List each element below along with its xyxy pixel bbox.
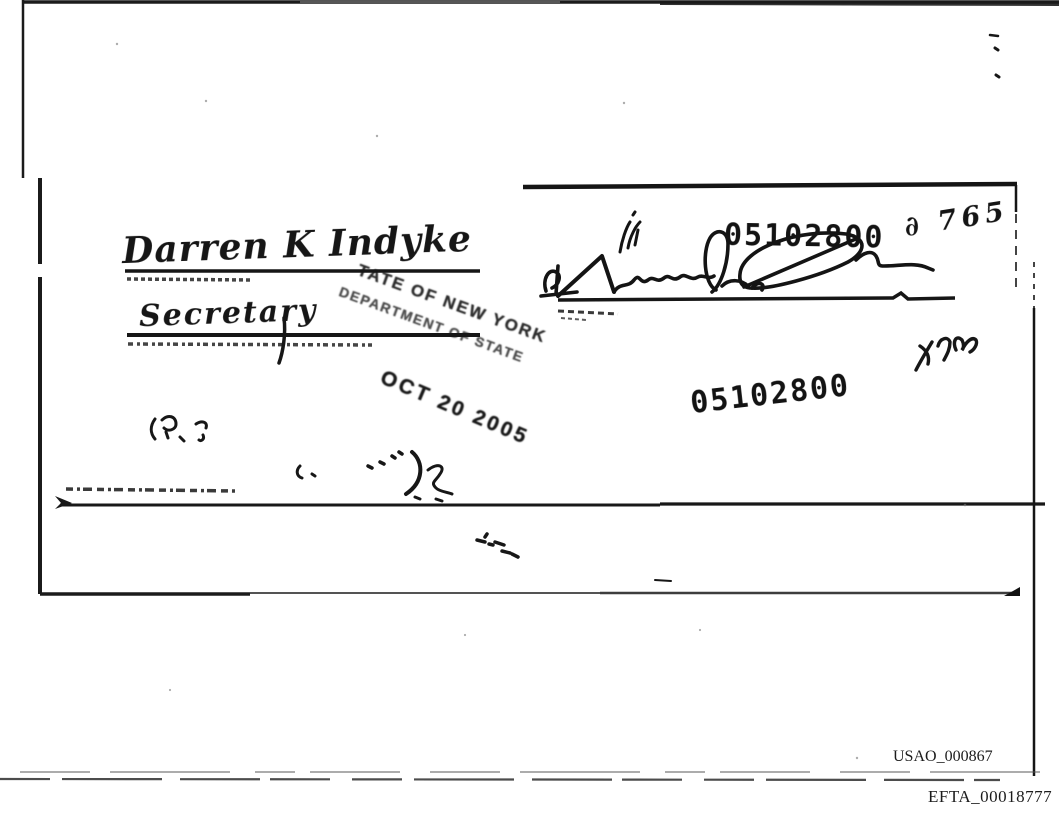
speck [964,504,967,507]
ink-mark-small-c [297,466,315,478]
ink-mark-star-cluster [477,534,518,557]
bottom-edge-dashes [0,772,1040,780]
signature1-microprint [127,279,253,280]
ink-mark-short-dash [655,580,671,581]
speck [376,135,378,137]
speck [205,100,207,102]
ink-mark-dots-row [368,452,402,468]
speck [169,689,171,691]
scrawl-cursive-arren [614,276,714,292]
ink-mark-triangle [1004,587,1020,596]
endorsement-microprint [558,311,618,314]
ink-mark-top-right-dot1 [995,48,998,50]
scrawl-tail [856,253,933,270]
ink-mark-cluster-left [151,417,206,441]
ink-mark-hebrew-scrawl [916,338,977,370]
ink-mark-top-right-dash [990,35,998,36]
speck [116,43,118,45]
speck [699,629,701,631]
scanned-document-page: Darren K Indyke Secretary TATE OF NEW YO… [0,0,1059,817]
scrawl-jm-mark [620,212,640,252]
endorsement-box-top-line [523,184,1017,187]
ink-marks [151,35,1020,596]
scan-specks [116,43,967,759]
mid-rule-arrowhead [55,496,72,509]
signature2-descender [279,318,285,363]
bottom-dashed-line-lower [0,779,1000,780]
endorsement-signature-scrawl [541,212,933,296]
mid-page-rule [55,489,1045,509]
speck [623,102,625,104]
ink-mark-big-paren [406,452,420,494]
endorsement-microprint-2 [561,318,586,320]
ink-mark-top-right-dot2 [996,75,999,77]
signature-rules [125,271,955,363]
inner-left-border-gap [36,264,44,277]
scrawl-big-d [558,256,614,296]
endorsement-underline [558,293,955,300]
top-border-line-right-thick [660,3,1059,4]
signature2-microprint [128,344,372,345]
speck [464,634,466,636]
scan-line-art [0,0,1059,817]
mid-rule-microprint [66,489,235,491]
speck [856,757,858,759]
